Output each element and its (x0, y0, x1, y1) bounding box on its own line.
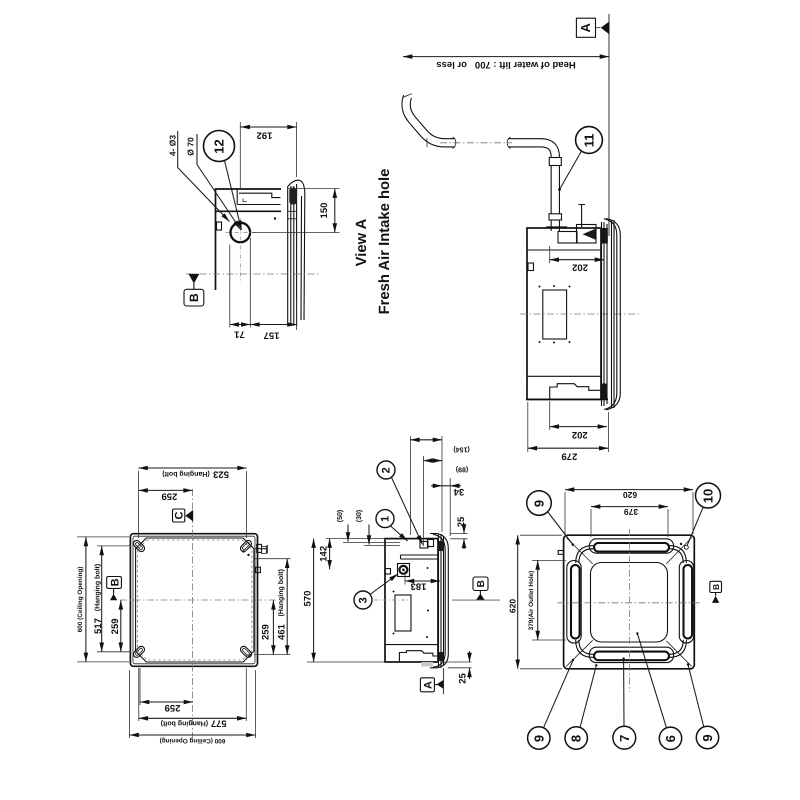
svg-text:(Hanging bolt): (Hanging bolt) (93, 564, 101, 611)
svg-text:570: 570 (302, 591, 313, 607)
svg-text:B: B (711, 584, 721, 590)
svg-text:(Hanging bolt): (Hanging bolt) (162, 470, 209, 478)
svg-text:25: 25 (458, 673, 469, 684)
svg-text:9: 9 (531, 735, 546, 742)
svg-text:Head of water lift : 700 or: Head of water lift : 700 or less (436, 59, 575, 70)
svg-text:1: 1 (380, 516, 392, 522)
svg-text:577: 577 (211, 718, 227, 729)
svg-text:6: 6 (663, 735, 678, 742)
svg-text:Fresh Air Intake hole: Fresh Air Intake hole (377, 169, 393, 315)
svg-text:71: 71 (234, 329, 245, 340)
svg-text:View A: View A (354, 218, 370, 266)
svg-text:B: B (187, 293, 201, 302)
svg-text:259: 259 (260, 624, 271, 640)
svg-text:379: 379 (624, 507, 638, 517)
svg-text:9: 9 (700, 734, 715, 741)
svg-text:183: 183 (411, 581, 427, 592)
svg-text:(Hanging bolt): (Hanging bolt) (277, 569, 285, 616)
svg-text:(50): (50) (336, 510, 344, 522)
svg-text:(Hanging bolt): (Hanging bolt) (161, 720, 208, 728)
svg-text:279: 279 (561, 451, 577, 462)
svg-text:259: 259 (110, 618, 121, 634)
svg-text:8: 8 (569, 735, 584, 742)
svg-text:150: 150 (319, 203, 330, 219)
svg-text:B: B (110, 578, 122, 586)
svg-text:259: 259 (165, 702, 181, 713)
svg-text:620: 620 (508, 599, 518, 613)
svg-text:25: 25 (456, 516, 467, 527)
svg-text:461: 461 (277, 623, 288, 640)
svg-text:142: 142 (318, 546, 329, 562)
svg-text:(89): (89) (456, 466, 468, 474)
svg-text:A: A (578, 22, 593, 32)
svg-text:523: 523 (213, 468, 229, 479)
svg-text:620: 620 (623, 490, 637, 500)
svg-text:259: 259 (161, 490, 177, 501)
svg-text:600 (Ceiling Opening): 600 (Ceiling Opening) (160, 737, 226, 744)
svg-text:202: 202 (572, 429, 588, 440)
svg-text:(154): (154) (453, 445, 469, 453)
svg-text:Ø 70: Ø 70 (186, 137, 196, 156)
svg-text:7: 7 (617, 735, 632, 742)
svg-text:(30): (30) (355, 510, 363, 522)
svg-text:11: 11 (582, 134, 597, 148)
svg-text:2: 2 (381, 467, 393, 473)
svg-text:34: 34 (453, 486, 464, 497)
svg-text:4- Ø3: 4- Ø3 (168, 135, 178, 157)
svg-text:10: 10 (701, 489, 716, 503)
svg-text:B: B (476, 580, 487, 587)
svg-text:C: C (174, 511, 186, 519)
svg-text:12: 12 (212, 139, 227, 153)
svg-text:9: 9 (532, 500, 547, 507)
svg-text:379(Air Outlet Hole): 379(Air Outlet Hole) (528, 571, 535, 631)
svg-text:192: 192 (257, 129, 273, 140)
svg-text:517: 517 (93, 618, 104, 634)
svg-text:600 (Ceiling Opening): 600 (Ceiling Opening) (77, 567, 84, 633)
svg-text:202: 202 (572, 262, 588, 273)
svg-text:157: 157 (264, 330, 280, 341)
svg-text:3: 3 (358, 597, 370, 603)
svg-text:A: A (423, 681, 435, 689)
